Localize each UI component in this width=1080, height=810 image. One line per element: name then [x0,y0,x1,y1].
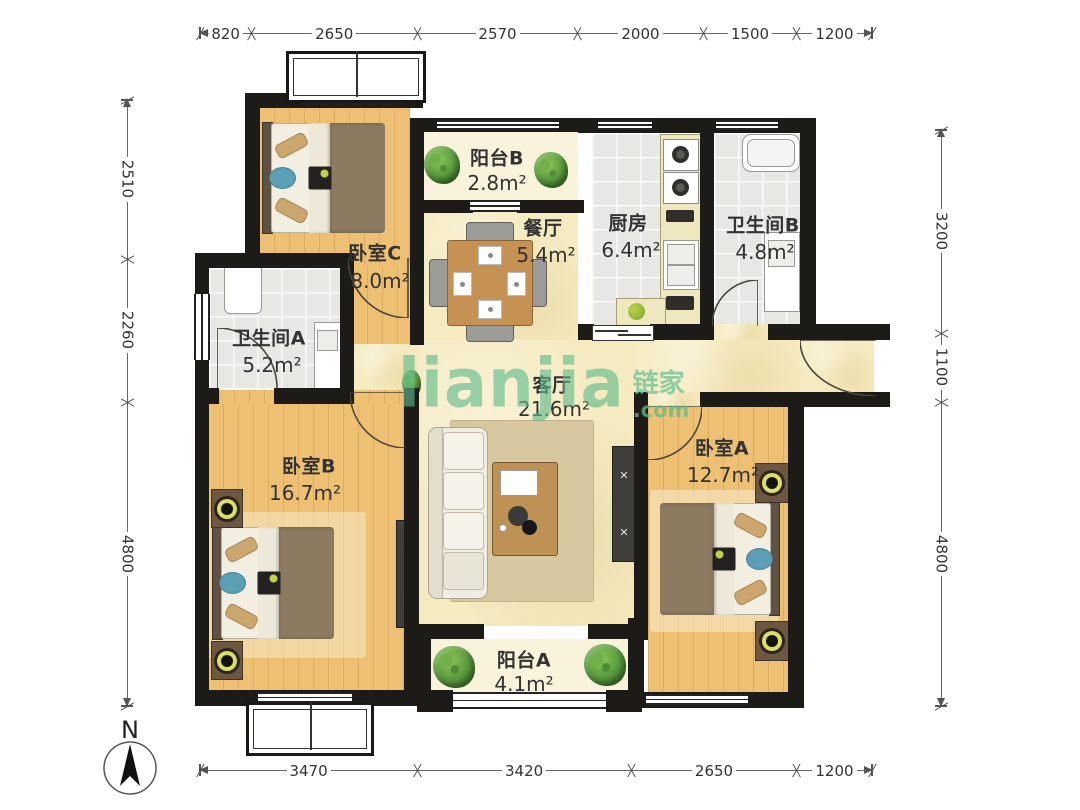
room-label-living: 客厅 [532,371,571,398]
wall [274,388,354,404]
wall [417,200,473,213]
bed-tray [258,572,281,595]
plant-icon [424,146,460,184]
floor-door-gap [714,324,768,340]
room-label-balcony-b: 阳台B [470,144,524,171]
floor-door-gap [219,388,274,404]
wall [517,200,584,213]
dimension-label: 2570 [475,25,519,43]
dimension-label: 2650 [312,25,356,43]
door-swing-icon [350,392,406,448]
door-swing-icon [712,280,758,326]
nightstand [211,489,243,528]
kitchen-item [666,296,694,310]
round-cushion [269,167,296,189]
room-label-bathroom-b: 卫生间B [726,211,799,238]
wall [430,624,484,639]
dimension-label: 2650 [692,762,736,780]
wall [606,690,642,712]
floor-door-gap [648,392,700,407]
compass-north-label: N [121,718,139,744]
sink-basin [667,244,695,265]
window [437,120,559,130]
lamp-icon [221,655,233,667]
room-label-bedroom-c: 卧室C [348,239,401,266]
dimension-label: 4800 [933,532,951,576]
door-swing-icon [800,340,876,396]
plant-icon [433,646,475,688]
dimension-label: 3470 [286,762,330,780]
room-area-living: 21.6m² [518,397,590,421]
dimension-label: 3420 [502,762,546,780]
lamp-icon [766,477,778,489]
room-area-bathroom-a: 5.2m² [242,353,301,377]
sofa-cushion [443,432,484,470]
room-label-kitchen: 厨房 [608,209,647,236]
wall [195,388,219,404]
plant-icon [584,644,626,686]
dimension-arrow [937,128,945,137]
room-label-bedroom-a: 卧室A [695,434,749,461]
stove-icon [663,139,699,171]
room-area-dining: 5.4m² [516,243,575,267]
window [646,694,748,705]
window [194,294,210,360]
dimension-label: 1100 [933,345,951,389]
bed-bedroom-a [660,502,780,616]
door-swing-icon [648,406,702,460]
dimension-arrow [864,766,873,774]
bed-tray [712,548,735,571]
window [716,120,778,130]
room-area-bathroom-b: 4.8m² [735,240,794,264]
wall [245,93,260,268]
window [470,200,520,212]
washbasin [317,330,338,351]
nightstand [755,621,789,661]
tray [500,470,538,496]
sofa [428,427,488,599]
dimension-label: 1200 [812,25,856,43]
table-decor [522,520,537,535]
wall [588,624,630,639]
stove-icon [663,172,699,204]
bed-tray [308,167,331,190]
cabinet-hall: ✕✕ [612,446,636,562]
dimension-label: 3200 [933,209,951,253]
dimension-label: 1500 [728,25,772,43]
round-cushion [746,548,773,570]
dimension-arrow [199,29,208,37]
dimension-arrow [937,698,945,707]
room-area-bedroom-a: 12.7m² [687,463,759,487]
lamp-icon [766,635,778,647]
room-area-balcony-a: 4.1m² [494,672,553,696]
nightstand [755,463,789,503]
wall [208,253,354,268]
round-cushion [219,572,246,594]
room-area-bedroom-b: 16.7m² [269,481,341,505]
room-area-kitchen: 6.4m² [601,238,660,262]
wall [800,118,816,340]
floor-plan-page: ✕✕ ✕✕ [0,0,1080,810]
room-label-bedroom-b: 卧室B [282,452,336,479]
bed-bedroom-c [262,122,385,234]
room-label-balcony-a: 阳台A [497,646,551,673]
dimension-arrow [123,98,131,107]
nightstand [211,641,243,680]
wall [768,324,816,340]
wall [634,392,648,640]
kitchen-utensils [666,210,694,222]
bay-window [246,702,374,756]
bathtub-inner [747,139,795,167]
wall [417,690,453,712]
plate [478,246,502,265]
lamp-icon [221,503,233,515]
plate [453,272,472,296]
sofa-cushion [443,552,484,590]
vegetable-basket [628,303,645,320]
room-label-dining: 餐厅 [523,214,562,241]
dimension-label: 4800 [119,532,137,576]
bay-window [286,51,426,103]
dimension-arrow [123,698,131,707]
compass-icon: N [102,718,158,800]
dimension-arrow [864,29,873,37]
bed-blanket [660,503,718,615]
table-decor [499,524,507,532]
plant-icon [534,152,568,188]
wall [410,118,424,345]
window [598,120,652,130]
bed-blanket [326,123,385,233]
dimension-label: 2260 [119,308,137,352]
dimension-label: 2510 [119,157,137,201]
bed-blanket [275,527,334,639]
bed-bedroom-b [212,526,334,640]
washing-machine [224,262,262,314]
north-arrow-icon [120,744,140,786]
sofa-cushion [443,512,484,550]
wall [404,388,419,694]
dimension-label: 2000 [618,25,662,43]
sink-basin [667,265,695,286]
dimension-label: 820 [208,25,243,43]
sofa-cushion [443,472,484,510]
sliding-door [592,325,654,341]
dimension-arrow [199,766,208,774]
floor-entry-hall [634,340,800,396]
dimension-label: 1200 [812,762,856,780]
wall [788,392,804,708]
room-label-bathroom-a: 卫生间A [232,324,306,351]
plate [478,300,502,319]
room-area-bedroom-c: 8.0m² [350,269,409,293]
plate [507,272,526,296]
room-area-balcony-b: 2.8m² [467,171,526,195]
